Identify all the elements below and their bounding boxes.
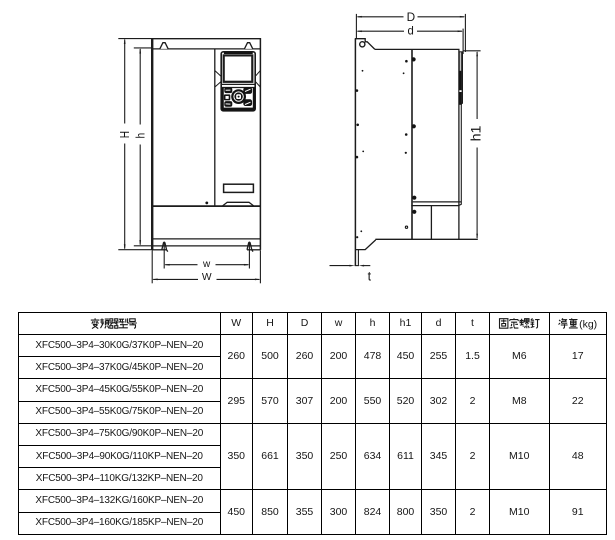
svg-text:w: w <box>202 259 211 270</box>
svg-text:h: h <box>134 133 147 138</box>
svg-text:W: W <box>202 272 212 283</box>
svg-text:t: t <box>368 269 372 283</box>
svg-text:d: d <box>408 23 414 37</box>
svg-text:D: D <box>407 10 416 24</box>
svg-text:h1: h1 <box>469 126 485 142</box>
svg-text:(kg): (kg) <box>579 319 597 331</box>
svg-text:H: H <box>119 131 132 138</box>
